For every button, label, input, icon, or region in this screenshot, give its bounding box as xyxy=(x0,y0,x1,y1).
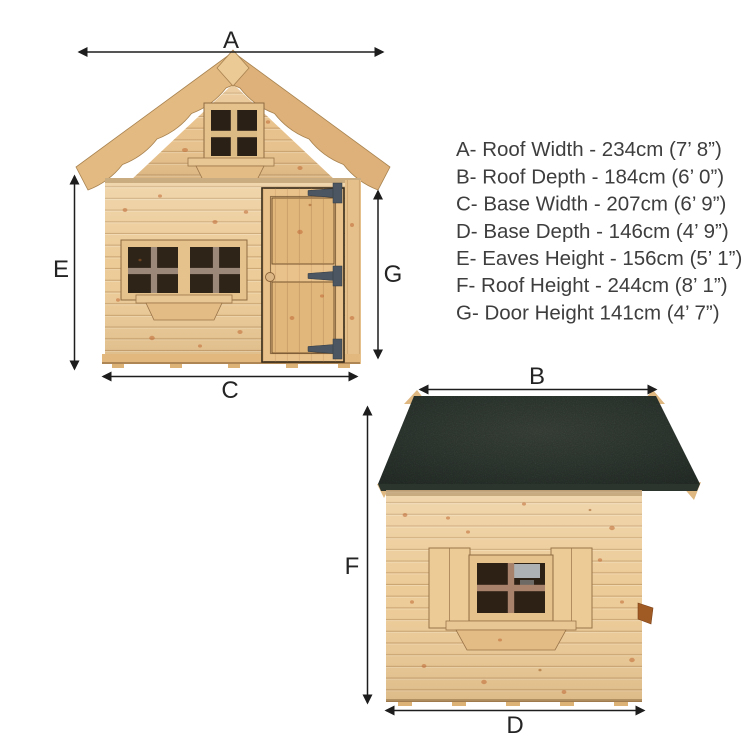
door-knob xyxy=(266,273,275,282)
front-door xyxy=(262,183,344,362)
side-eaves-shadow xyxy=(386,490,642,496)
legend-line-g: G- Door Height 141cm (4’ 7”) xyxy=(456,301,720,324)
dim-label-E: E xyxy=(53,256,69,283)
dim-label-G: G xyxy=(384,261,403,288)
dim-label-C: C xyxy=(221,377,238,404)
upper-window-mullion-h xyxy=(211,131,257,137)
diagram-svg: A E G C A- Roof Width - 234cm (7’ 8”) B-… xyxy=(0,0,750,750)
side-window-box xyxy=(446,621,576,650)
legend-line-e: E- Eaves Height - 156cm (5’ 1”) xyxy=(456,247,742,270)
legend-line-a: A- Roof Width - 234cm (7’ 8”) xyxy=(456,138,722,161)
legend-line-f: F- Roof Height - 244cm (8’ 1”) xyxy=(456,274,728,297)
side-window-mullion-h xyxy=(477,585,545,591)
legend-line-b: B- Roof Depth - 184cm (6’ 0”) xyxy=(456,165,724,188)
dim-label-A: A xyxy=(223,27,239,54)
playhouse-dimension-diagram: A E G C A- Roof Width - 234cm (7’ 8”) B-… xyxy=(0,0,750,750)
dim-label-B: B xyxy=(529,363,545,390)
side-roof xyxy=(378,396,700,491)
eaves-shadow xyxy=(105,178,361,183)
roof-eave-edge xyxy=(378,484,700,491)
glass-reflection xyxy=(514,564,540,578)
dim-label-D: D xyxy=(506,712,523,739)
lower-window-center-post xyxy=(178,243,190,297)
dimension-legend: A- Roof Width - 234cm (7’ 8”) B- Roof De… xyxy=(456,138,742,324)
dim-label-F: F xyxy=(345,553,360,580)
legend-line-d: D- Base Depth - 146cm (4’ 9”) xyxy=(456,220,729,243)
legend-line-c: C- Base Width - 207cm (6’ 9”) xyxy=(456,193,726,216)
